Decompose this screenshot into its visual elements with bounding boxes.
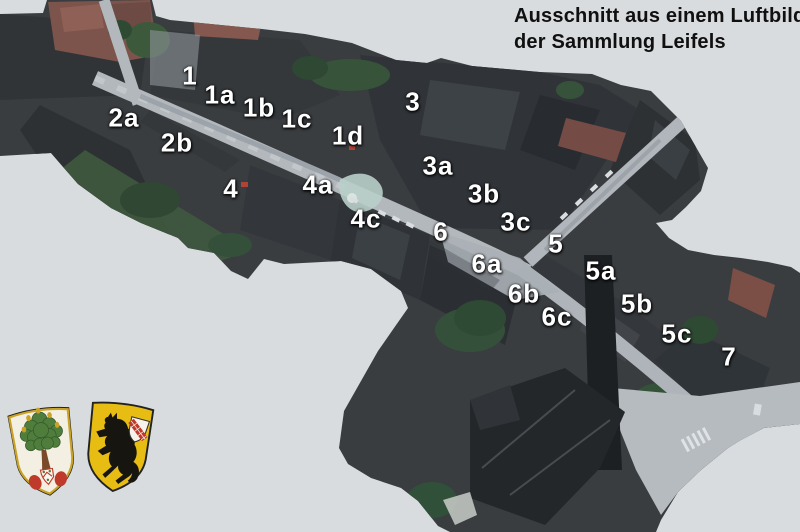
building-label-6a: 6a (472, 249, 503, 280)
building-label-1: 1 (182, 61, 197, 92)
caption-line-1: Ausschnitt aus einem Luftbild (514, 3, 800, 29)
black-horse-coat-of-arms-icon (74, 394, 162, 503)
building-label-1b: 1b (243, 93, 275, 124)
caption: Ausschnitt aus einem Luftbild der Sammlu… (514, 3, 800, 55)
building-label-1a: 1a (205, 80, 236, 111)
building-label-4a: 4a (303, 170, 334, 201)
building-label-3: 3 (405, 87, 420, 118)
building-label-2b: 2b (161, 128, 193, 159)
building-label-5a: 5a (586, 256, 617, 287)
building-label-1d: 1d (332, 121, 364, 152)
building-label-7: 7 (721, 342, 736, 373)
building-label-5b: 5b (621, 289, 653, 320)
building-label-5: 5 (548, 229, 563, 260)
building-label-2a: 2a (109, 103, 140, 134)
building-label-6b: 6b (508, 279, 540, 310)
building-label-3b: 3b (468, 179, 500, 210)
building-label-6: 6 (433, 217, 448, 248)
caption-line-2: der Sammlung Leifels (514, 29, 800, 55)
building-label-5c: 5c (662, 319, 693, 350)
building-label-3a: 3a (423, 151, 454, 182)
building-label-3c: 3c (501, 207, 532, 238)
building-label-4c: 4c (351, 204, 382, 235)
annotated-aerial-map: Ausschnitt aus einem Luftbild der Sammlu… (0, 0, 800, 532)
building-label-4: 4 (223, 174, 238, 205)
building-label-6c: 6c (542, 302, 573, 333)
building-label-1c: 1c (282, 104, 313, 135)
